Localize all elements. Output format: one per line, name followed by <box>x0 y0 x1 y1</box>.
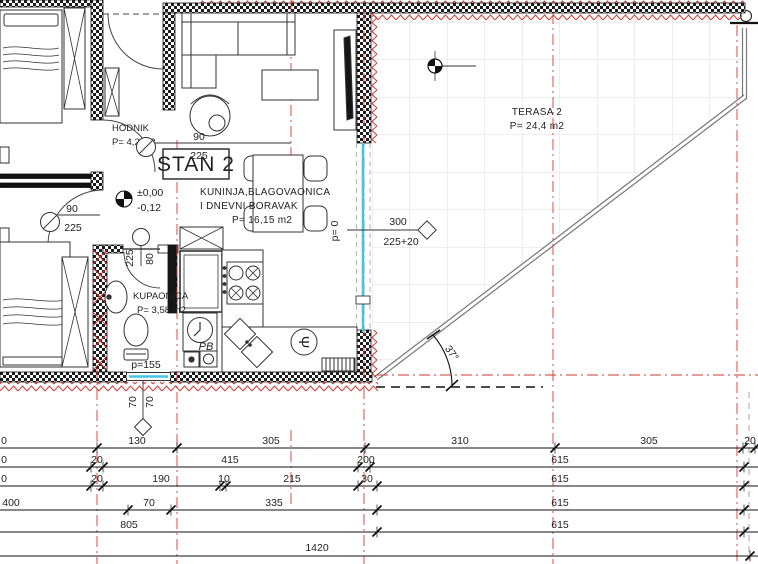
nightstand <box>0 147 9 163</box>
elevation-bottom-label: -0,12 <box>137 202 161 214</box>
faucet-glyph: Ψ <box>295 336 312 349</box>
floor-plan-canvas: TERASA 2 P= 24,4 m2 37° <box>0 0 758 564</box>
door-width-label: 90 <box>193 131 205 143</box>
toilet <box>124 314 148 360</box>
armchair <box>190 95 230 136</box>
dim-label: 805 <box>120 519 138 531</box>
dim-label: 615 <box>551 519 569 531</box>
bedroom1-furniture <box>0 8 85 163</box>
terrace-name-label: TERASA 2 <box>512 107 562 118</box>
dim-label: 0 <box>1 454 7 466</box>
terrace-glass-door <box>356 143 370 332</box>
dim-label: 20 <box>744 435 756 447</box>
parapet-label: p=155 <box>131 359 161 371</box>
dimension-labels: 0 130 305 310 305 20 0 20 415 200 615 0 … <box>1 435 756 554</box>
dim-label: 1420 <box>305 542 329 554</box>
dim-label: 0 <box>1 473 7 485</box>
living-name-line2: I DNEVNI BORAVAK <box>200 201 298 212</box>
bathroom-window <box>127 371 170 382</box>
stove <box>223 262 263 304</box>
round-sink: Ψ <box>291 329 317 355</box>
dim-label: 200 <box>357 454 375 466</box>
terrace-area-label: P= 24,4 m2 <box>510 121 565 132</box>
dim-label: 615 <box>551 497 569 509</box>
bathroom-sink <box>105 281 127 313</box>
elevation-marker-icon: ±0,00 -0,12 <box>116 187 163 214</box>
dim-label: 310 <box>451 435 469 447</box>
elevation-top-label: ±0,00 <box>137 187 163 199</box>
dimension-chains: 0 130 305 310 305 20 0 20 415 200 615 0 … <box>0 435 758 562</box>
laundry-units <box>184 351 217 367</box>
dim-label: 130 <box>128 435 146 447</box>
hallway-name-label: HODNIK <box>112 123 150 134</box>
dim-label: 0 <box>1 435 7 447</box>
bed <box>0 10 62 123</box>
dim-label: 10 <box>218 473 230 485</box>
wardrobe <box>64 8 85 109</box>
coffee-table <box>262 70 318 100</box>
dimension-ticks <box>87 443 758 562</box>
door-lower-annotation: 90 225 <box>41 203 101 234</box>
window-dim-right: 70 <box>144 396 156 408</box>
dim-label: 305 <box>640 435 658 447</box>
door-height-label: 225 <box>64 222 82 234</box>
dim-label: 400 <box>2 497 20 509</box>
window-dim-left: 70 <box>127 396 139 408</box>
bath-door-width-label: 80 <box>144 253 156 265</box>
dim-label: 215 <box>283 473 301 485</box>
hallway: HODNIK P= 4,2 m2 <box>105 68 156 148</box>
dim-label: 190 <box>152 473 170 485</box>
opening-width-label: 300 <box>389 216 407 228</box>
bathroom-area-label: P= 3,58 m2 <box>137 305 186 316</box>
parapet-label: p= 0 <box>329 220 341 241</box>
door-height-label: 225 <box>190 150 208 162</box>
bath-door-annotation: 225 80 <box>124 229 156 267</box>
dim-label: 70 <box>143 497 155 509</box>
dim-label: 615 <box>551 454 569 466</box>
living-name-line1: KUNINJA,BLAGOVAONICA <box>200 187 330 198</box>
terrace-area: TERASA 2 P= 24,4 m2 37° <box>372 11 758 392</box>
opening-height-label: 225+20 <box>383 236 418 248</box>
dim-label: 335 <box>265 497 283 509</box>
door-width-label: 90 <box>66 203 78 215</box>
dim-label: 20 <box>91 454 103 466</box>
washing-machine: PB <box>183 313 217 353</box>
shoe-cabinet <box>105 68 119 116</box>
kitchen: Ψ PB <box>180 227 357 372</box>
angle-value-label: 37° <box>442 343 461 363</box>
dim-label: 30 <box>361 473 373 485</box>
drying-rack <box>322 358 355 371</box>
dim-label: 415 <box>221 454 239 466</box>
bathroom-name-label: KUPAONICA <box>133 291 189 302</box>
bath-window-annotation: p=155 70 70 <box>127 359 161 435</box>
bath-door-height-label: 225 <box>124 249 136 267</box>
dim-label: 615 <box>551 473 569 485</box>
nightstand <box>0 228 9 243</box>
living-room: STAN 2 KUNINJA,BLAGOVAONICA I DNEVNI BOR… <box>157 13 356 232</box>
tv-cabinet <box>334 30 356 130</box>
dim-label: 20 <box>91 473 103 485</box>
bedroom2-furniture <box>0 228 88 367</box>
dim-label: 305 <box>262 435 280 447</box>
wardrobe <box>62 257 88 367</box>
bathroom: KUPAONICA P= 3,58 m2 <box>105 281 189 360</box>
bed <box>0 242 70 367</box>
living-area-label: P= 16,15 m2 <box>232 215 292 226</box>
floor-plan-page: TERASA 2 P= 24,4 m2 37° <box>0 0 758 564</box>
